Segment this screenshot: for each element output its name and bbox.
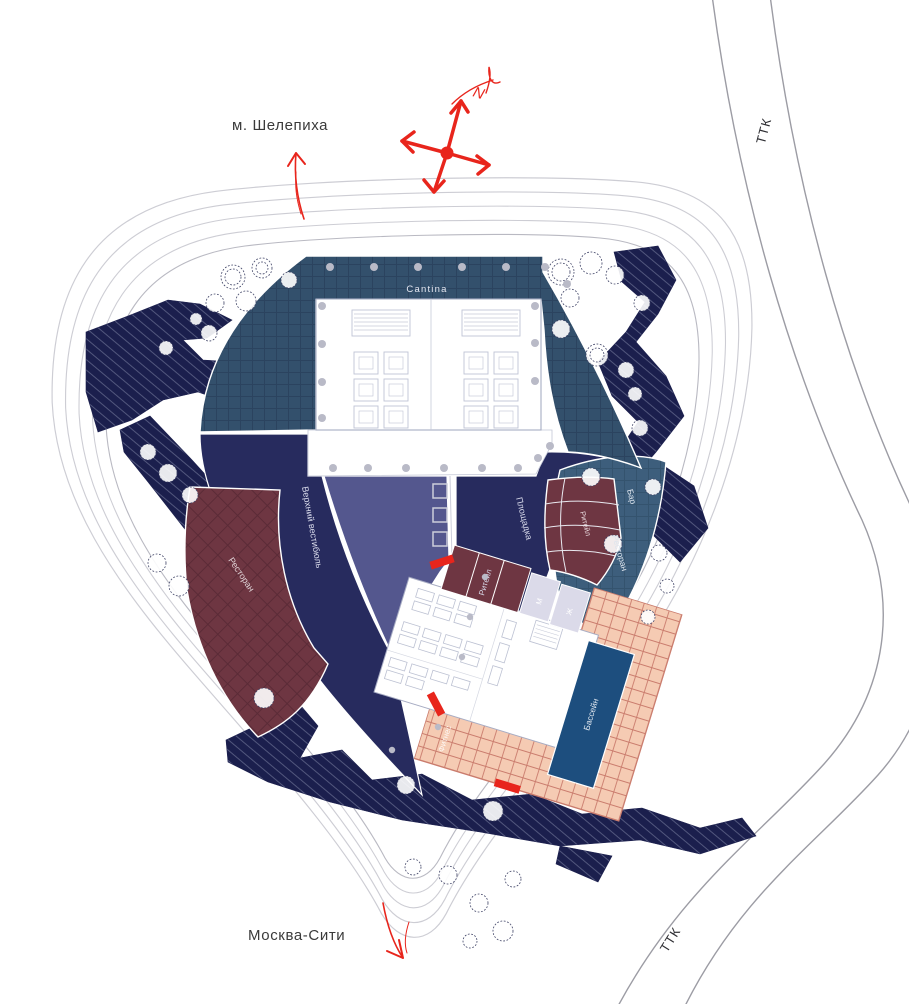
site-plan-drawing: Ритейл М Ж Бассейн Фитнес [0, 0, 909, 1004]
metro-arrow-icon [288, 153, 305, 219]
ttk-label-bottom: ТТК [657, 924, 684, 954]
core-building [308, 299, 552, 476]
zone-retail-upper [544, 477, 621, 585]
site-plan-canvas: Ритейл М Ж Бассейн Фитнес [0, 0, 909, 1004]
metro-label: м. Шелепиха [232, 117, 328, 134]
north-letter: N [471, 84, 487, 104]
cantina-label: Cantina [406, 284, 447, 295]
ttk-label-top: ТТК [753, 116, 774, 145]
berm-bottom-right [556, 846, 612, 882]
city-label: Москва-Сити [248, 927, 345, 944]
